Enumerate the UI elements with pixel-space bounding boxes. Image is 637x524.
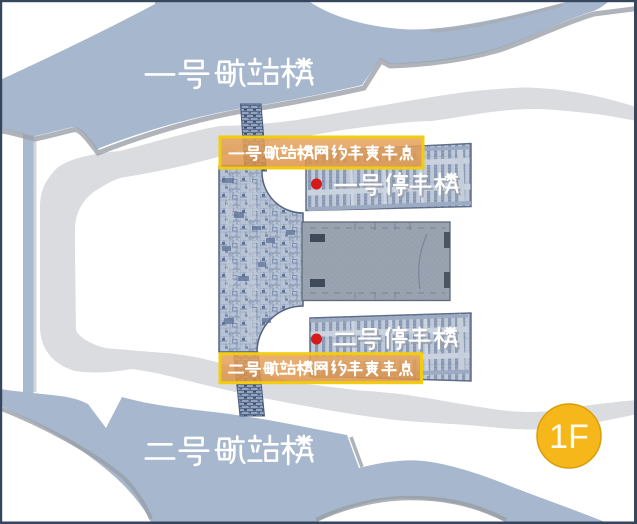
svg-text:1F: 1F bbox=[549, 418, 589, 456]
